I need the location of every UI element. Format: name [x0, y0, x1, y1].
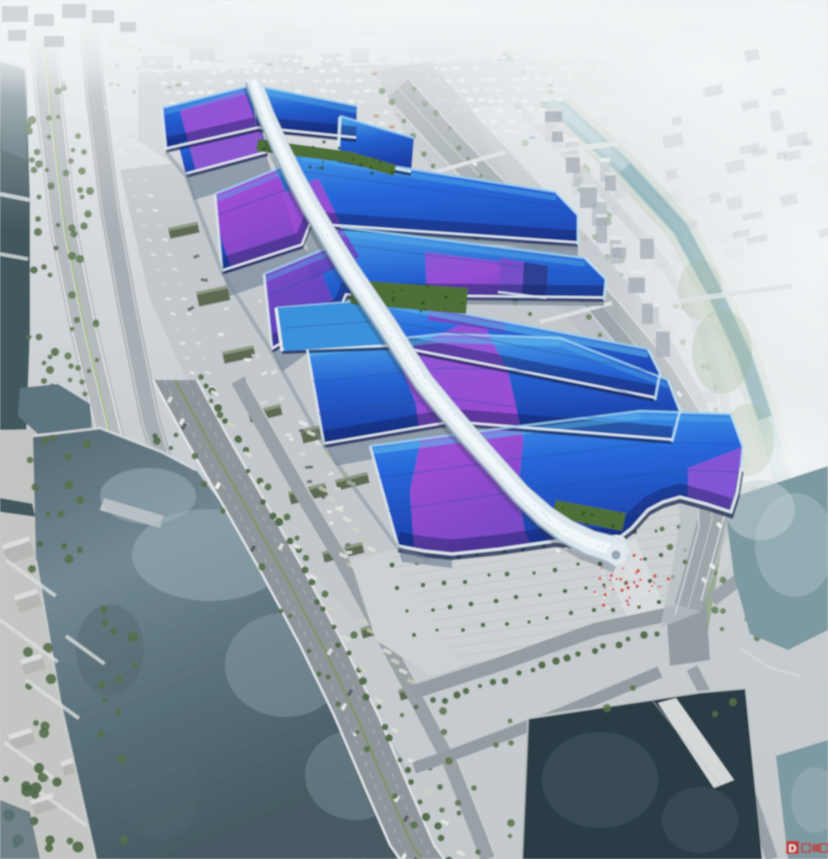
svg-text:D: D — [789, 843, 797, 855]
